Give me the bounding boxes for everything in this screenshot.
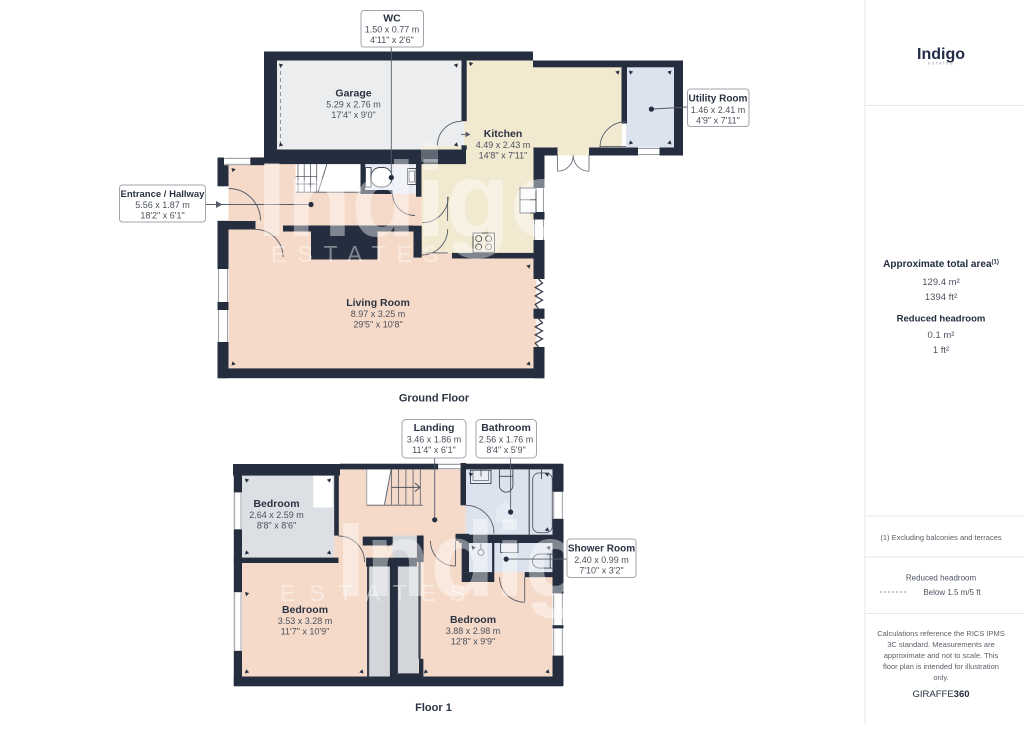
svg-text:Below 1.5 m/5 ft: Below 1.5 m/5 ft (923, 588, 981, 597)
svg-text:7'10" x 3'2": 7'10" x 3'2" (579, 566, 623, 576)
svg-text:2.64 x 2.59 m: 2.64 x 2.59 m (249, 510, 304, 520)
svg-text:only.: only. (933, 673, 948, 682)
svg-text:129.4 m²: 129.4 m² (922, 277, 960, 288)
svg-text:Reduced headroom: Reduced headroom (897, 314, 986, 325)
svg-text:3C standard. Measurements are: 3C standard. Measurements are (887, 640, 995, 649)
svg-text:18'2" x 6'1": 18'2" x 6'1" (140, 211, 184, 221)
svg-text:5.56 x 1.87 m: 5.56 x 1.87 m (135, 200, 190, 210)
svg-text:(1) Excluding balconies and te: (1) Excluding balconies and terraces (880, 533, 1002, 542)
svg-text:Calculations reference the RIC: Calculations reference the RICS IPMS (877, 629, 1005, 638)
svg-text:Bathroom: Bathroom (481, 422, 531, 434)
svg-text:Landing: Landing (414, 422, 455, 434)
svg-text:1394 ft²: 1394 ft² (925, 292, 957, 303)
svg-text:12'8" x 9'9": 12'8" x 9'9" (451, 637, 495, 647)
svg-text:Living Room: Living Room (346, 297, 410, 309)
svg-text:8'4" x 5'9": 8'4" x 5'9" (486, 445, 525, 455)
svg-text:ESTATES: ESTATES (280, 580, 479, 606)
svg-text:Indigo: Indigo (917, 46, 965, 63)
svg-text:29'5" x 10'8": 29'5" x 10'8" (353, 320, 402, 330)
svg-text:Kitchen: Kitchen (484, 128, 523, 140)
svg-text:Floor 1: Floor 1 (415, 702, 452, 714)
svg-text:approximate and not to scale.: approximate and not to scale. This (884, 651, 999, 660)
svg-text:3.53 x 3.28 m: 3.53 x 3.28 m (278, 616, 333, 626)
svg-text:2.56 x 1.76 m: 2.56 x 1.76 m (479, 435, 534, 445)
svg-text:GIRAFFE360: GIRAFFE360 (912, 689, 969, 700)
svg-text:Garage: Garage (335, 88, 371, 100)
svg-text:Reduced headroom: Reduced headroom (906, 574, 977, 583)
svg-text:8'8" x 8'6": 8'8" x 8'6" (257, 521, 296, 531)
svg-text:ESTATES: ESTATES (271, 241, 449, 267)
svg-text:Entrance / Hallway: Entrance / Hallway (121, 189, 206, 200)
svg-text:0.1 m²: 0.1 m² (928, 330, 955, 341)
svg-text:Ground Floor: Ground Floor (399, 393, 470, 405)
svg-text:1.50 x 0.77 m: 1.50 x 0.77 m (365, 25, 420, 35)
svg-text:11'4" x 6'1": 11'4" x 6'1" (412, 445, 456, 455)
svg-text:Approximate total area(1): Approximate total area(1) (883, 259, 999, 270)
svg-text:3.88 x 2.98 m: 3.88 x 2.98 m (446, 626, 501, 636)
svg-text:Shower Room: Shower Room (568, 544, 635, 555)
svg-text:1.46 x 2.41 m: 1.46 x 2.41 m (691, 105, 746, 115)
svg-text:17'4" x 9'0": 17'4" x 9'0" (331, 110, 375, 120)
svg-text:Bedroom: Bedroom (253, 498, 299, 510)
svg-text:Utility Room: Utility Room (689, 94, 748, 105)
svg-text:1 ft²: 1 ft² (933, 345, 949, 356)
svg-text:floor plan is intended for ill: floor plan is intended for illustration (883, 662, 999, 671)
svg-text:5.29 x 2.76 m: 5.29 x 2.76 m (326, 100, 381, 110)
svg-text:8.97 x 3.25 m: 8.97 x 3.25 m (351, 309, 406, 319)
svg-text:3.46 x 1.86 m: 3.46 x 1.86 m (407, 435, 462, 445)
svg-text:2.40 x 0.99 m: 2.40 x 0.99 m (574, 555, 629, 565)
svg-text:WC: WC (383, 13, 401, 25)
svg-text:ESTATES: ESTATES (928, 62, 954, 66)
svg-text:11'7" x 10'9": 11'7" x 10'9" (281, 627, 330, 637)
svg-text:4'9" x 7'11": 4'9" x 7'11" (696, 116, 740, 126)
svg-text:4'11" x 2'6": 4'11" x 2'6" (370, 35, 414, 45)
